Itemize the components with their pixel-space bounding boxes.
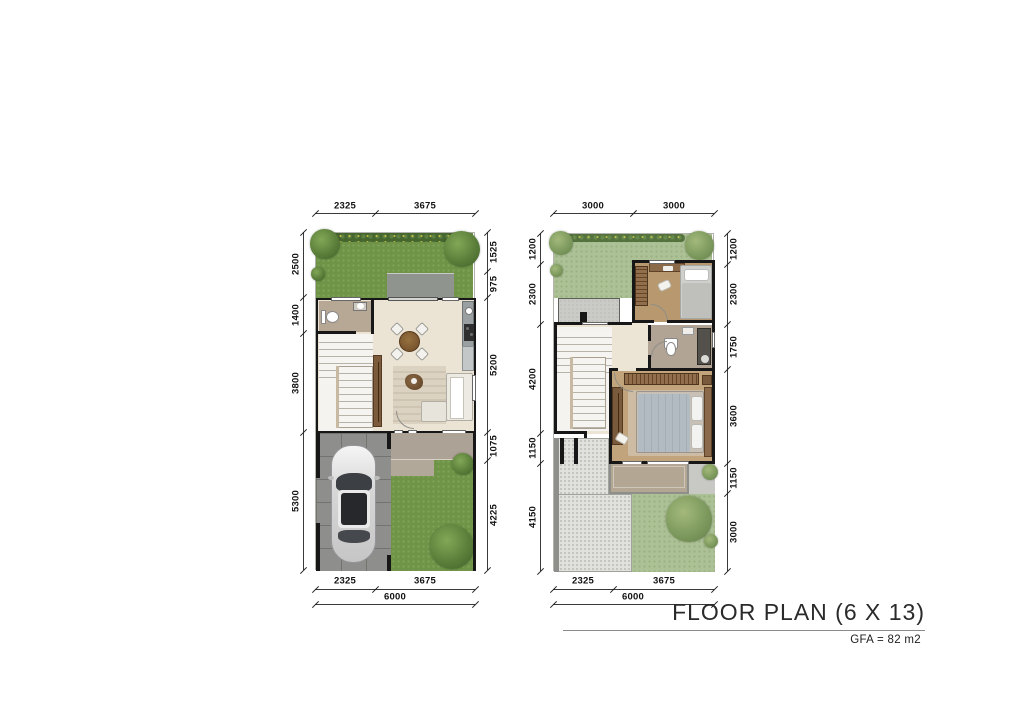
dim-label: 1525 bbox=[489, 241, 500, 263]
stove-icon bbox=[464, 324, 474, 341]
tree-icon bbox=[310, 229, 340, 259]
burner bbox=[470, 333, 473, 336]
toilet-icon bbox=[326, 311, 339, 323]
wardrobe bbox=[624, 373, 699, 385]
tree-icon bbox=[549, 231, 573, 255]
dim-label: 1200 bbox=[528, 238, 539, 260]
dim-label: 4200 bbox=[528, 368, 539, 390]
dim-label: 5300 bbox=[291, 490, 302, 512]
car-sunroof bbox=[341, 493, 367, 525]
pillow bbox=[691, 396, 703, 421]
dim-tick bbox=[537, 229, 544, 236]
dim-label: 2500 bbox=[291, 253, 302, 275]
title-rule bbox=[563, 630, 925, 631]
dim-tick bbox=[471, 585, 478, 592]
sofa-cushion bbox=[450, 377, 464, 419]
double-bed bbox=[636, 391, 704, 453]
ground-floor-plan bbox=[315, 232, 475, 570]
balcony bbox=[609, 464, 689, 494]
dim-tick bbox=[537, 260, 544, 267]
wall bbox=[609, 368, 612, 464]
sliding-door bbox=[388, 297, 438, 301]
sofa bbox=[446, 373, 473, 421]
dim-label: 3675 bbox=[414, 201, 436, 212]
dim-tick bbox=[537, 429, 544, 436]
dimension-line bbox=[315, 213, 475, 214]
car-mirror bbox=[374, 476, 380, 480]
staircase bbox=[319, 334, 373, 431]
window bbox=[649, 260, 675, 264]
dining-table bbox=[399, 331, 420, 352]
duvet bbox=[682, 283, 711, 318]
dim-label: 3600 bbox=[729, 405, 740, 427]
wall bbox=[712, 260, 715, 464]
dim-tick bbox=[484, 566, 491, 573]
burner bbox=[466, 327, 469, 330]
wall-stub bbox=[574, 438, 578, 464]
dim-label: 975 bbox=[489, 276, 500, 292]
dim-tick bbox=[311, 585, 318, 592]
dim-label: 5200 bbox=[489, 354, 500, 376]
dim-label: 1750 bbox=[729, 336, 740, 358]
dim-tick bbox=[471, 209, 478, 216]
upper-floor-plan bbox=[553, 233, 714, 571]
dim-label: 1075 bbox=[489, 435, 500, 457]
upper-terrace bbox=[558, 298, 620, 324]
front-terrace bbox=[387, 273, 454, 298]
pillow bbox=[684, 269, 709, 281]
dim-label: 1400 bbox=[291, 304, 302, 326]
dim-tick bbox=[300, 293, 307, 300]
dimension-line bbox=[540, 233, 541, 571]
wall bbox=[667, 320, 715, 323]
tv-cabinet bbox=[373, 355, 382, 427]
desk-item bbox=[663, 266, 673, 271]
dim-tick bbox=[372, 585, 379, 592]
roof-gutter bbox=[554, 438, 559, 572]
floor-plan-sheet: 2325 3675 2500 1400 3800 5300 1525 975 5… bbox=[0, 0, 1024, 723]
dim-tick bbox=[724, 366, 731, 373]
dim-label: 2325 bbox=[334, 576, 356, 587]
stair-treads bbox=[570, 357, 606, 429]
dim-label: 2325 bbox=[572, 576, 594, 587]
wall-stub bbox=[560, 438, 564, 464]
cabinet-line bbox=[378, 362, 379, 422]
dim-label: 3000 bbox=[663, 201, 685, 212]
shrub-icon bbox=[311, 267, 325, 281]
wall bbox=[648, 325, 651, 341]
pillow bbox=[691, 424, 703, 449]
toilet-icon bbox=[321, 310, 326, 324]
table-decor bbox=[411, 378, 417, 384]
carport-wall bbox=[316, 523, 320, 571]
dim-tick bbox=[724, 260, 731, 267]
kitchen-counter bbox=[462, 301, 474, 347]
kitchen-cabinet bbox=[462, 346, 474, 371]
duvet bbox=[638, 394, 690, 452]
window bbox=[472, 375, 476, 401]
dim-tick bbox=[311, 209, 318, 216]
dim-label: 3000 bbox=[582, 201, 604, 212]
bathroom-wall bbox=[371, 298, 374, 334]
carport-wall bbox=[387, 555, 391, 571]
shrub-icon bbox=[452, 453, 474, 475]
dim-tick bbox=[484, 293, 491, 300]
dimension-line bbox=[315, 589, 475, 590]
bath-shelf bbox=[682, 327, 694, 335]
sink-bowl bbox=[357, 303, 364, 309]
page-title: FLOOR PLAN (6 X 13) bbox=[563, 599, 925, 626]
dim-label: 3000 bbox=[729, 521, 740, 543]
dim-label: 4150 bbox=[528, 506, 539, 528]
carport-wall bbox=[316, 433, 320, 478]
shrub-icon bbox=[702, 464, 718, 480]
kitchen-sink-icon bbox=[465, 307, 473, 315]
dim-tick bbox=[724, 459, 731, 466]
dim-label: 3800 bbox=[291, 372, 302, 394]
toilet-icon bbox=[666, 342, 676, 356]
dim-label: 1150 bbox=[729, 467, 740, 488]
dim-tick bbox=[610, 585, 617, 592]
dimension-line bbox=[553, 589, 714, 590]
headboard bbox=[704, 387, 712, 457]
dim-tick bbox=[724, 229, 731, 236]
tree-icon bbox=[444, 231, 480, 267]
dim-tick bbox=[471, 600, 478, 607]
dim-tick bbox=[484, 268, 491, 275]
dim-label: 1200 bbox=[729, 238, 740, 260]
dim-tick bbox=[549, 585, 556, 592]
wall bbox=[554, 322, 557, 434]
dim-label: 2300 bbox=[729, 283, 740, 305]
dim-tick bbox=[300, 428, 307, 435]
window bbox=[712, 332, 715, 348]
wardrobe bbox=[635, 266, 648, 306]
sink-bowl bbox=[701, 355, 709, 363]
wall bbox=[636, 368, 715, 371]
dim-tick bbox=[484, 456, 491, 463]
dim-tick bbox=[300, 228, 307, 235]
tree-icon bbox=[685, 231, 714, 260]
stair-treads bbox=[336, 366, 373, 428]
car-rear-window bbox=[338, 530, 370, 543]
wall bbox=[554, 431, 587, 434]
dim-tick bbox=[484, 228, 491, 235]
window bbox=[442, 297, 459, 301]
dim-tick bbox=[300, 566, 307, 573]
dim-label: 2300 bbox=[528, 283, 539, 305]
hedge-row bbox=[557, 234, 685, 242]
staircase bbox=[557, 327, 612, 431]
nightstand bbox=[702, 375, 712, 385]
shrub-icon bbox=[704, 534, 718, 548]
tree-icon bbox=[430, 525, 474, 569]
vanity bbox=[697, 328, 711, 365]
dim-label: 6000 bbox=[384, 592, 406, 603]
garden-wall bbox=[473, 433, 476, 571]
car-mirror bbox=[328, 476, 334, 480]
patio-step bbox=[391, 460, 434, 476]
carport-wall bbox=[387, 433, 391, 449]
stair-rail bbox=[570, 357, 573, 429]
wall bbox=[632, 260, 635, 322]
window bbox=[331, 297, 361, 301]
dimension-line bbox=[315, 604, 475, 605]
dimension-line bbox=[553, 213, 714, 214]
dim-tick bbox=[537, 567, 544, 574]
dim-tick bbox=[549, 209, 556, 216]
bathroom bbox=[319, 301, 372, 332]
dim-label: 4225 bbox=[489, 504, 500, 526]
dim-tick bbox=[724, 567, 731, 574]
dim-tick bbox=[724, 320, 731, 327]
shrub-icon bbox=[550, 264, 563, 277]
dim-tick bbox=[537, 459, 544, 466]
dim-tick bbox=[372, 209, 379, 216]
roof-deck bbox=[554, 494, 632, 572]
dimension-line bbox=[303, 232, 304, 570]
dim-tick bbox=[300, 330, 307, 337]
dim-tick bbox=[311, 600, 318, 607]
coffee-table bbox=[405, 374, 423, 390]
dim-label: 1150 bbox=[528, 437, 539, 458]
window bbox=[582, 322, 608, 325]
wall bbox=[632, 320, 654, 323]
lounge-chaise bbox=[421, 401, 447, 422]
dim-tick bbox=[549, 600, 556, 607]
single-bed bbox=[680, 265, 712, 319]
dim-label: 3675 bbox=[653, 576, 675, 587]
dim-tick bbox=[710, 209, 717, 216]
dim-tick bbox=[537, 320, 544, 327]
balcony-rail bbox=[613, 466, 685, 488]
gfa-label: GFA = 82 m2 bbox=[563, 634, 921, 646]
dim-label: 3675 bbox=[414, 576, 436, 587]
car bbox=[331, 445, 376, 563]
dim-tick bbox=[630, 209, 637, 216]
dim-tick bbox=[724, 489, 731, 496]
dim-label: 2325 bbox=[334, 201, 356, 212]
dim-tick bbox=[710, 585, 717, 592]
stair-rail bbox=[336, 366, 339, 428]
